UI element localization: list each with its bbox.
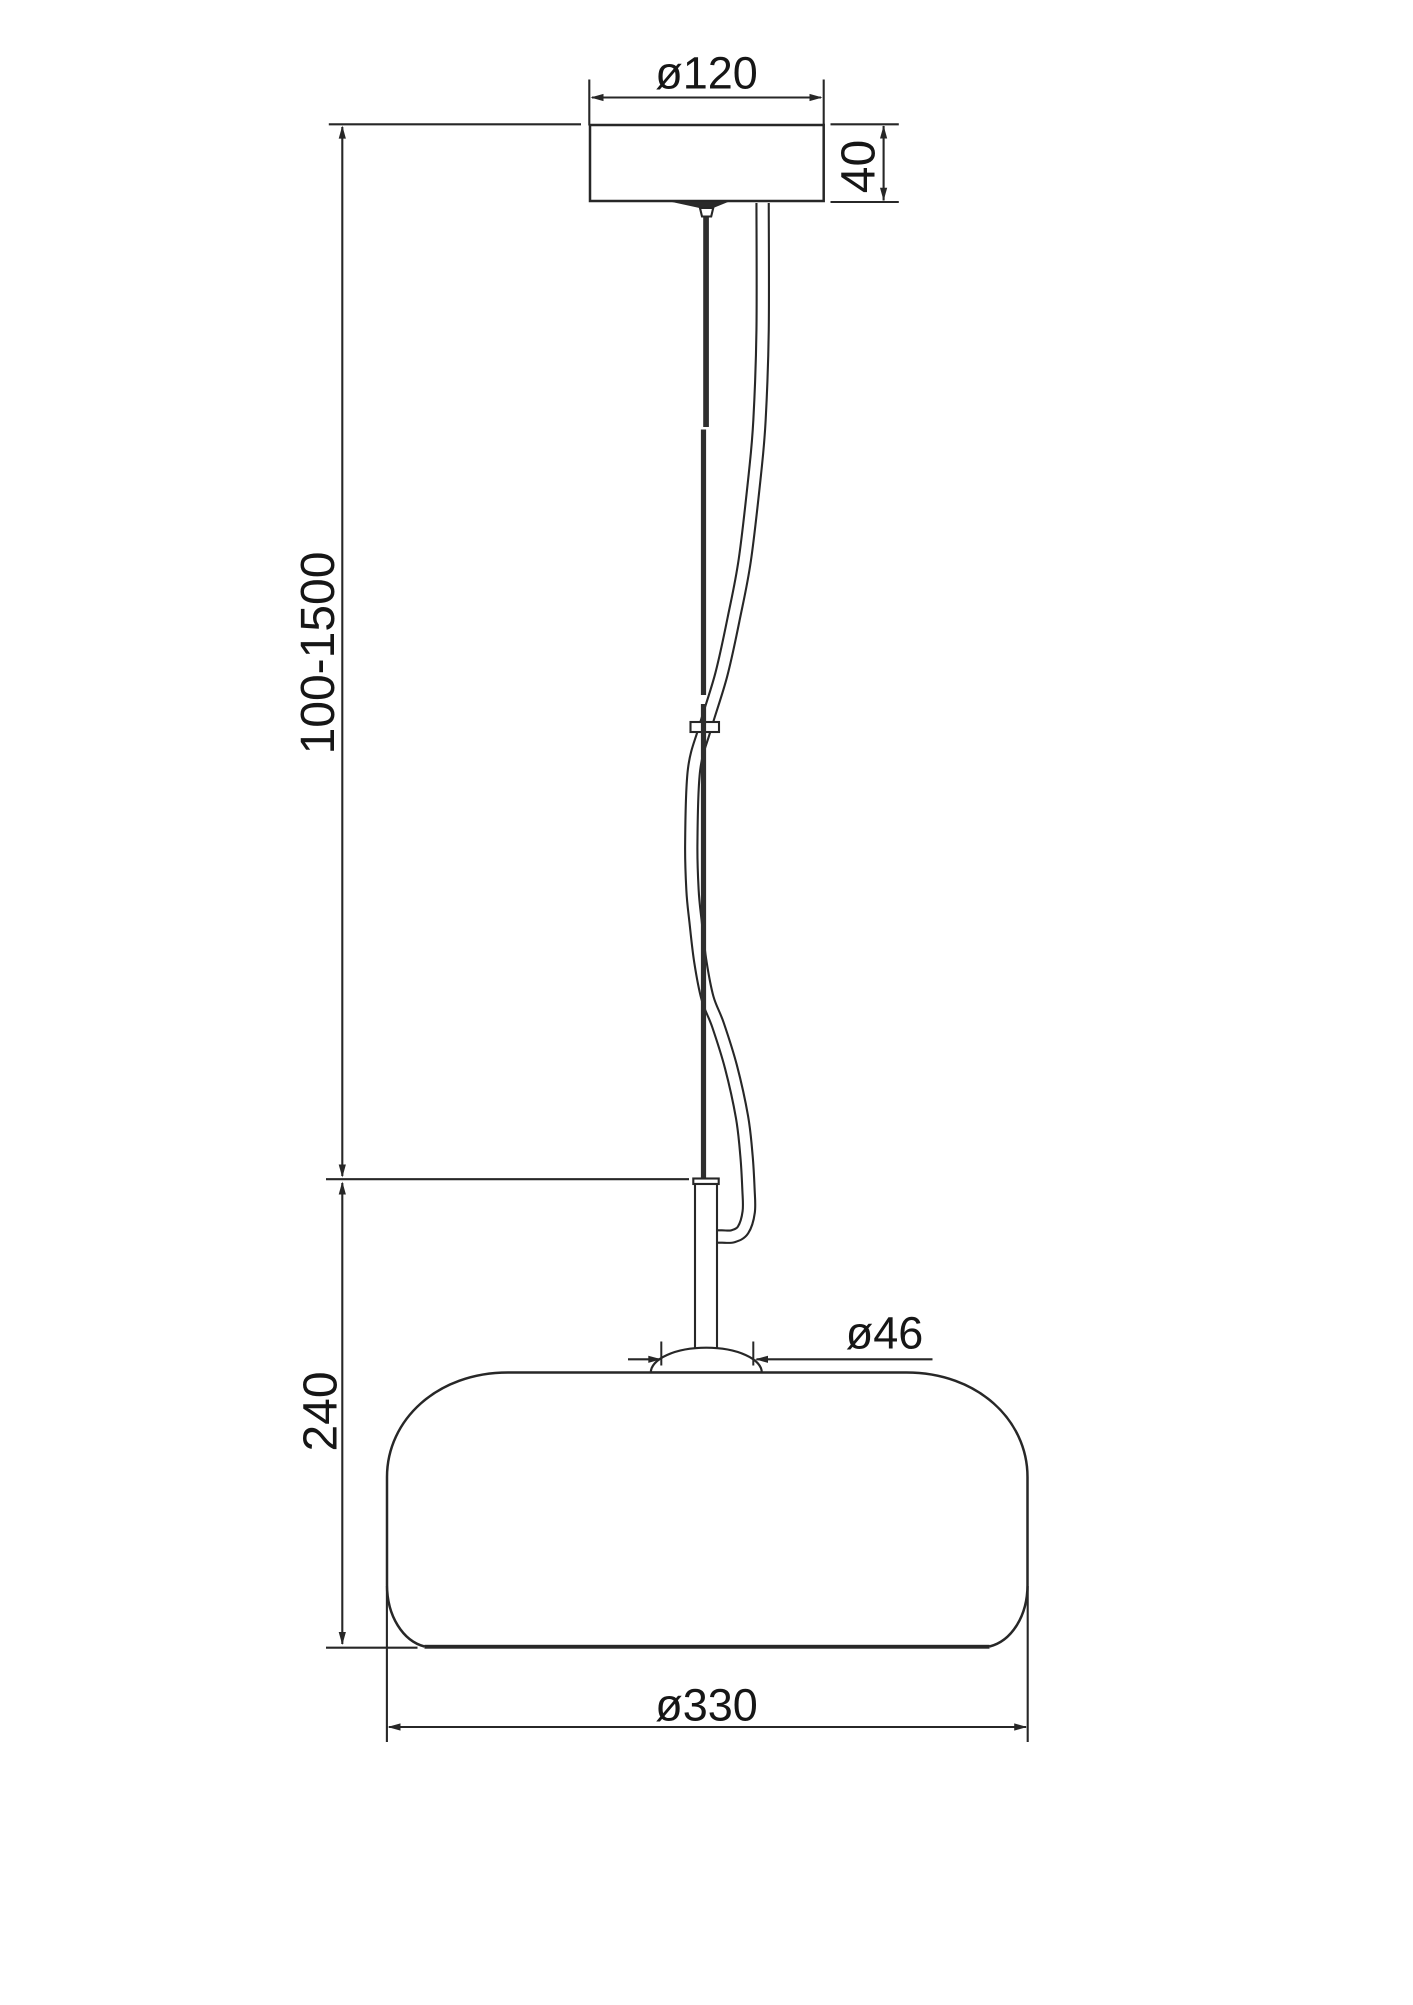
svg-text:240: 240: [295, 1371, 348, 1451]
svg-text:ø330: ø330: [655, 1680, 758, 1731]
svg-text:ø120: ø120: [655, 48, 758, 99]
svg-text:100-1500: 100-1500: [292, 552, 345, 755]
svg-text:40: 40: [833, 140, 886, 193]
svg-text:ø46: ø46: [846, 1308, 924, 1359]
